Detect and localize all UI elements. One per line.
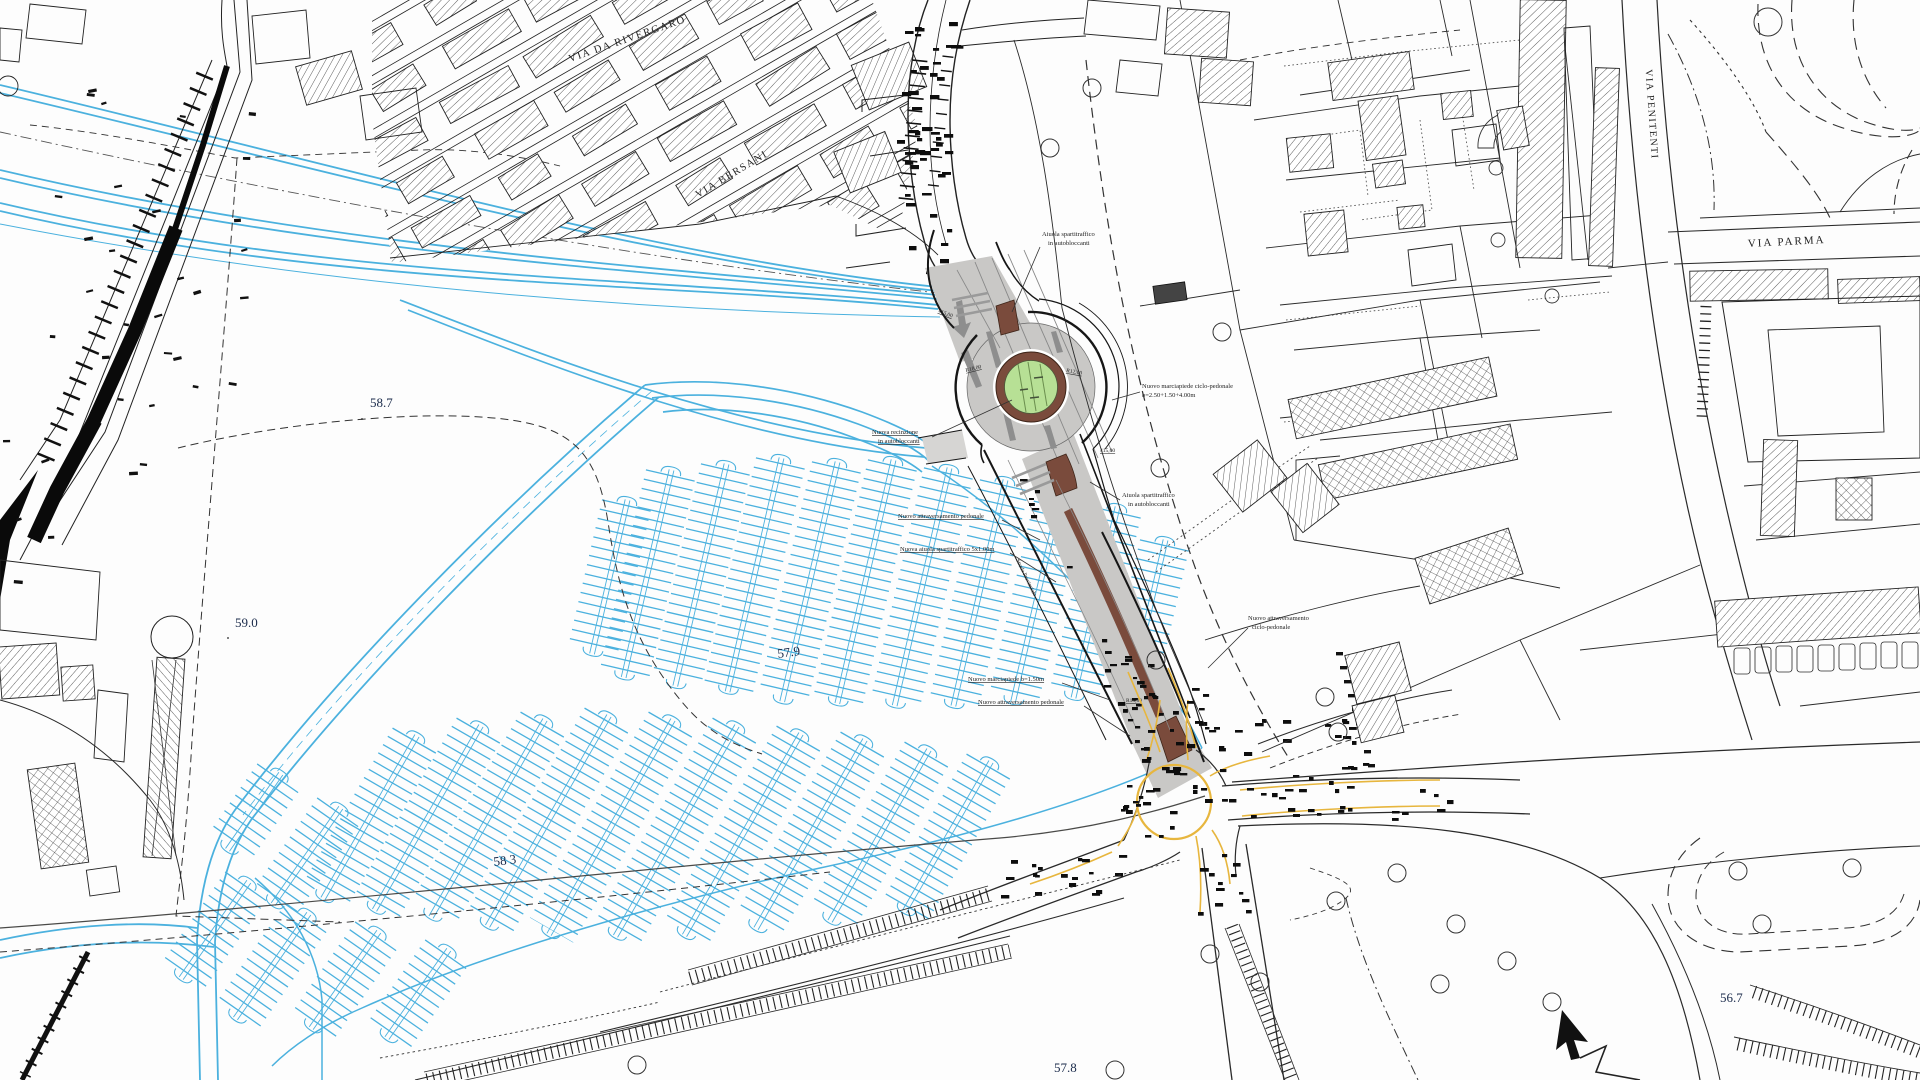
svg-text:57.9: 57.9 <box>776 643 801 661</box>
svg-text:Nuovo marciapiede ciclo-pedona: Nuovo marciapiede ciclo-pedonale <box>1142 383 1233 390</box>
svg-text:Nuovo attraversamento pedonale: Nuovo attraversamento pedonale <box>898 513 984 520</box>
svg-text:Nuova aiuola spartitraffico 5x: Nuova aiuola spartitraffico 5x1.00m <box>900 546 994 553</box>
svg-text:Nuovo marciapiede b=1.50m: Nuovo marciapiede b=1.50m <box>968 676 1044 683</box>
svg-text:Nuovo attraversamento pedonale: Nuovo attraversamento pedonale <box>978 699 1064 706</box>
svg-text:59.0: 59.0 <box>235 615 258 630</box>
svg-text:57.8: 57.8 <box>1054 1060 1077 1075</box>
svg-text:b=2.50+1.50+4.00m: b=2.50+1.50+4.00m <box>1142 392 1195 399</box>
svg-text:Nuova recinzione: Nuova recinzione <box>872 429 918 436</box>
svg-text:Aiuola spartitraffico: Aiuola spartitraffico <box>1042 231 1095 238</box>
svg-text:58 3: 58 3 <box>493 851 517 869</box>
svg-text:in autobloccanti: in autobloccanti <box>878 438 920 445</box>
svg-text:ciclo-pedonale: ciclo-pedonale <box>1252 624 1290 631</box>
svg-text:Aiuola spartitraffico: Aiuola spartitraffico <box>1122 492 1175 499</box>
svg-text:58.7: 58.7 <box>370 395 393 410</box>
svg-text:Nuovo attraversamento: Nuovo attraversamento <box>1248 615 1309 622</box>
svg-text:56.7: 56.7 <box>1720 990 1743 1005</box>
svg-text:in autobloccanti: in autobloccanti <box>1128 501 1170 508</box>
